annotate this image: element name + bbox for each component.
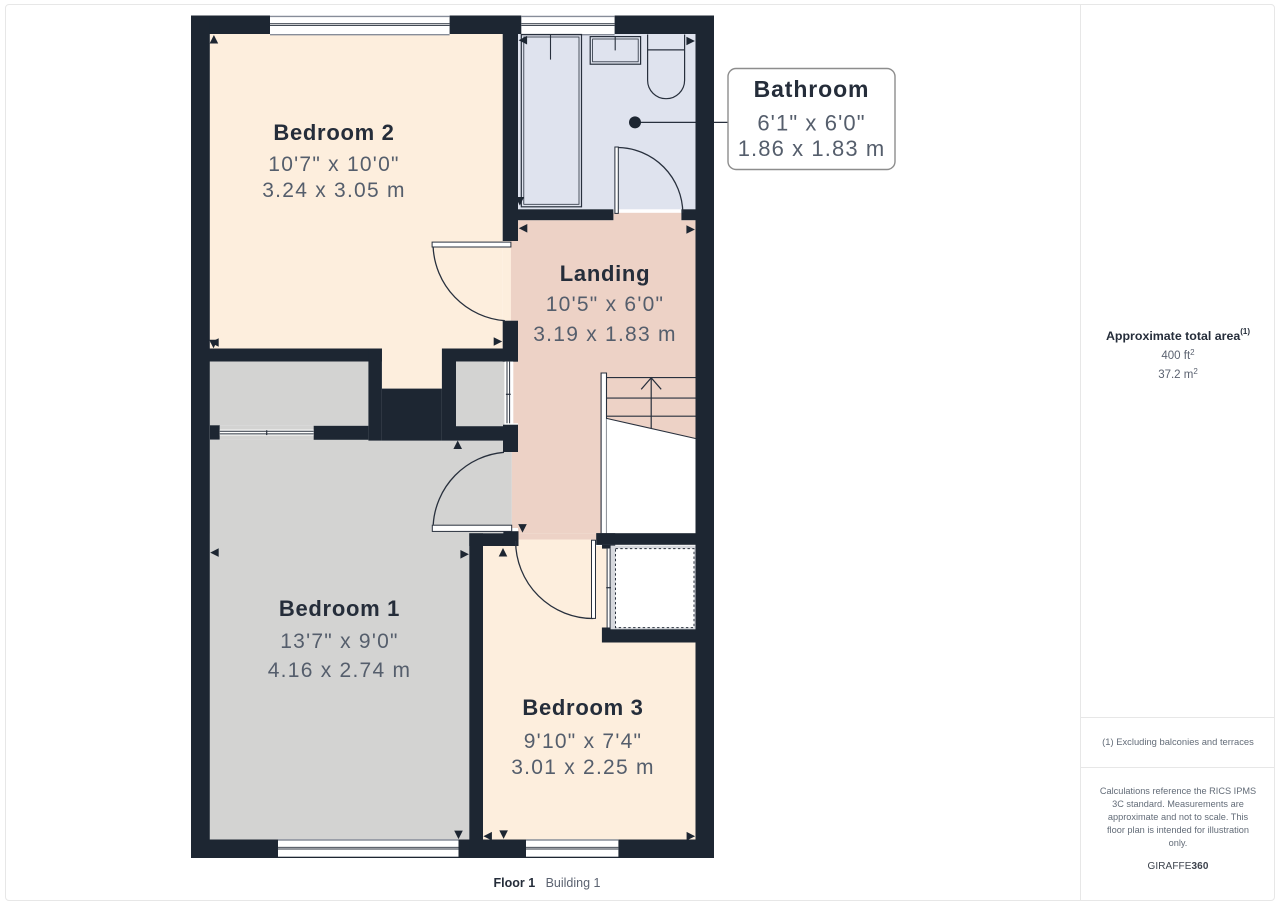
svg-text:3.01 x 2.25 m: 3.01 x 2.25 m [511,756,655,779]
svg-text:3.24 x 3.05 m: 3.24 x 3.05 m [262,179,406,202]
svg-text:3.19 x 1.83 m: 3.19 x 1.83 m [533,323,677,346]
svg-text:1.86 x 1.83 m: 1.86 x 1.83 m [738,136,886,161]
svg-text:9'10" x 7'4": 9'10" x 7'4" [524,730,643,753]
svg-text:Bathroom: Bathroom [754,76,870,102]
svg-text:Bedroom 2: Bedroom 2 [273,120,394,145]
svg-text:4.16 x 2.74 m: 4.16 x 2.74 m [268,659,412,682]
svg-text:Bedroom 3: Bedroom 3 [522,695,643,720]
svg-text:6'1" x 6'0": 6'1" x 6'0" [757,111,865,136]
svg-text:10'5" x 6'0": 10'5" x 6'0" [546,293,665,316]
svg-text:10'7" x 10'0": 10'7" x 10'0" [268,153,399,176]
svg-text:13'7" x 9'0": 13'7" x 9'0" [280,630,399,653]
svg-text:Bedroom 1: Bedroom 1 [279,596,400,621]
svg-text:Landing: Landing [560,261,650,286]
